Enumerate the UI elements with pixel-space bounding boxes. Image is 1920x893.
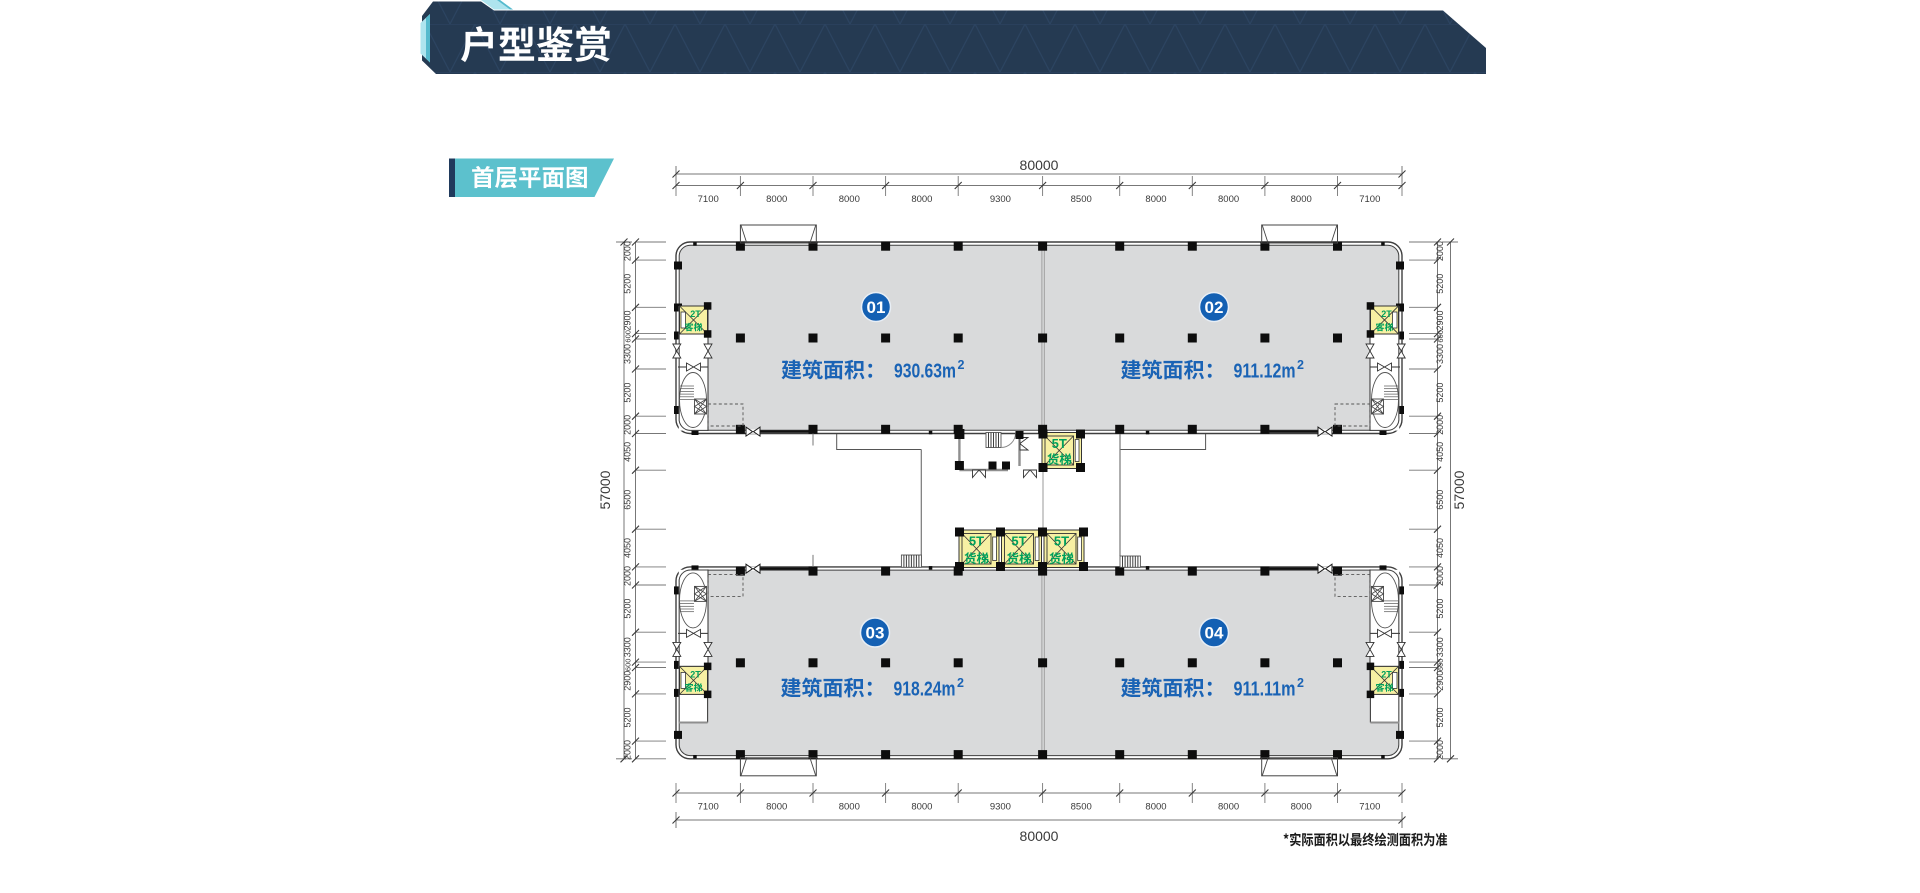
svg-text:6500: 6500: [1435, 490, 1445, 510]
svg-text:2T: 2T: [690, 309, 701, 319]
svg-text:03: 03: [866, 624, 885, 643]
svg-text:2000: 2000: [623, 566, 633, 586]
svg-text:5200: 5200: [623, 599, 633, 619]
svg-text:4050: 4050: [623, 442, 633, 462]
svg-text:930.63m: 930.63m: [894, 361, 956, 383]
svg-text:2T: 2T: [690, 669, 701, 679]
svg-text:5200: 5200: [1435, 599, 1445, 619]
svg-text:2000: 2000: [1435, 415, 1445, 435]
svg-text:3300: 3300: [623, 344, 633, 364]
svg-text:5200: 5200: [1435, 274, 1445, 294]
svg-text:7100: 7100: [698, 802, 719, 813]
svg-text:57000: 57000: [1451, 470, 1467, 509]
svg-text:3300: 3300: [623, 637, 633, 657]
svg-text:8000: 8000: [1145, 802, 1166, 813]
svg-text:04: 04: [1205, 624, 1224, 643]
svg-text:01: 01: [867, 298, 886, 317]
svg-text:2: 2: [958, 358, 965, 372]
svg-text:5T: 5T: [1011, 534, 1026, 549]
svg-text:57000: 57000: [597, 470, 613, 509]
svg-text:8500: 8500: [1071, 194, 1092, 205]
svg-text:600: 600: [624, 330, 633, 343]
svg-text:4050: 4050: [1435, 538, 1445, 558]
svg-text:2000: 2000: [623, 415, 633, 435]
svg-text:2T: 2T: [1381, 669, 1392, 679]
svg-text:8000: 8000: [1291, 194, 1312, 205]
svg-text:600: 600: [1436, 330, 1445, 343]
svg-text:2T: 2T: [1381, 309, 1392, 319]
svg-text:8500: 8500: [1071, 802, 1092, 813]
svg-text:8000: 8000: [911, 194, 932, 205]
svg-text:911.12m: 911.12m: [1234, 361, 1296, 383]
svg-text:8000: 8000: [766, 802, 787, 813]
svg-text:5200: 5200: [1435, 707, 1445, 727]
svg-text:5200: 5200: [623, 707, 633, 727]
svg-text:2900: 2900: [623, 310, 633, 330]
svg-text:2000: 2000: [1435, 241, 1445, 261]
svg-text:2000: 2000: [623, 241, 633, 261]
svg-text:2900: 2900: [1435, 671, 1445, 691]
svg-text:4050: 4050: [1435, 442, 1445, 462]
svg-text:2: 2: [957, 676, 964, 690]
svg-text:8000: 8000: [839, 194, 860, 205]
svg-text:6500: 6500: [623, 490, 633, 510]
svg-text:02: 02: [1205, 298, 1224, 317]
svg-text:3300: 3300: [1435, 637, 1445, 657]
svg-text:5T: 5T: [1054, 534, 1069, 549]
svg-text:80000: 80000: [1020, 157, 1059, 173]
svg-text:5200: 5200: [623, 274, 633, 294]
svg-text:8000: 8000: [1218, 194, 1239, 205]
svg-text:8000: 8000: [1218, 802, 1239, 813]
svg-text:2000: 2000: [1435, 566, 1445, 586]
svg-text:2000: 2000: [1435, 740, 1445, 760]
svg-text:2900: 2900: [1435, 310, 1445, 330]
svg-text:911.11m: 911.11m: [1234, 679, 1296, 701]
svg-text:8000: 8000: [1145, 194, 1166, 205]
svg-text:2: 2: [1297, 358, 1304, 372]
svg-text:2900: 2900: [623, 671, 633, 691]
svg-text:7100: 7100: [1359, 802, 1380, 813]
svg-text:5200: 5200: [623, 383, 633, 403]
svg-text:600: 600: [1436, 659, 1445, 672]
svg-text:5T: 5T: [969, 534, 984, 549]
svg-text:80000: 80000: [1020, 828, 1059, 844]
svg-text:8000: 8000: [839, 802, 860, 813]
svg-text:5T: 5T: [1052, 436, 1067, 451]
svg-text:7100: 7100: [1359, 194, 1380, 205]
svg-text:918.24m: 918.24m: [894, 679, 956, 701]
svg-text:5200: 5200: [1435, 383, 1445, 403]
svg-text:8000: 8000: [1291, 802, 1312, 813]
svg-text:8000: 8000: [766, 194, 787, 205]
svg-text:7100: 7100: [698, 194, 719, 205]
svg-text:2000: 2000: [623, 740, 633, 760]
svg-text:3300: 3300: [1435, 344, 1445, 364]
svg-text:8000: 8000: [911, 802, 932, 813]
svg-text:4050: 4050: [623, 538, 633, 558]
svg-text:600: 600: [624, 659, 633, 672]
svg-text:2: 2: [1297, 676, 1304, 690]
svg-text:9300: 9300: [990, 802, 1011, 813]
svg-text:9300: 9300: [990, 194, 1011, 205]
